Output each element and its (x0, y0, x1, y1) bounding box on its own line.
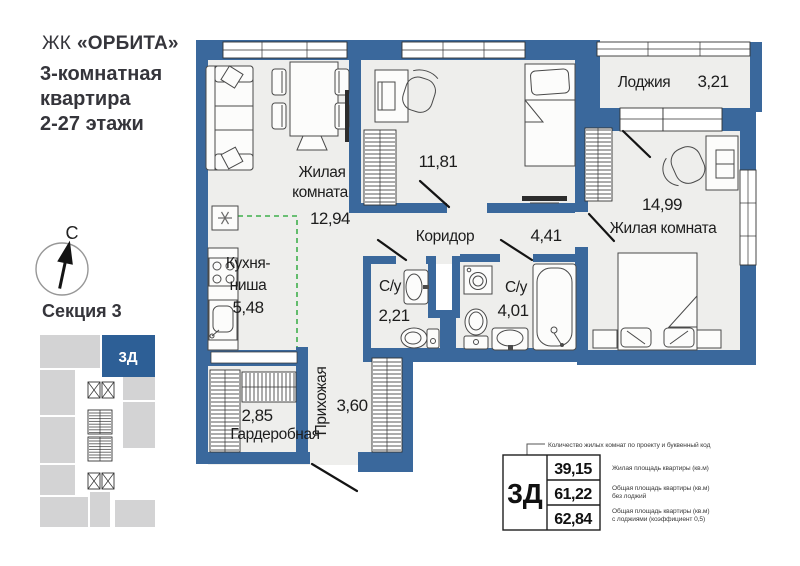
sofa-icon (206, 66, 253, 170)
legend-pointer-label: Количество жилых комнат по проекту и бук… (548, 441, 711, 449)
legend-label-total-area-2: без лоджий (612, 492, 647, 500)
room-area-kitchen: 5,48 (232, 298, 263, 317)
wardrobe-icon (242, 372, 296, 402)
legend-label-total-loggia-1: Общая площадь квартиры (кв.м) (612, 507, 709, 515)
desk-icon (706, 136, 738, 190)
room-label-living2: Жилая комната (610, 220, 718, 237)
wall-niche (211, 352, 297, 363)
room-label-living1-line1: Жилая (298, 164, 345, 181)
building-block (90, 492, 110, 527)
room-area-bath1: 2,21 (378, 306, 409, 325)
room-area-corridor: 4,41 (530, 226, 561, 245)
chair-icon (272, 69, 286, 95)
plumbing-shaft (436, 264, 452, 310)
elevator-icon (88, 382, 100, 398)
washing-machine-icon (464, 266, 492, 294)
nightstand-icon (697, 330, 721, 348)
tv-icon (345, 90, 349, 142)
bathroom-sink-icon (492, 328, 528, 350)
room-label-bath1: С/у (379, 278, 402, 295)
building-block (123, 402, 155, 448)
stairs-icon (88, 410, 112, 434)
building-block (115, 500, 155, 527)
legend-value-living-area: 39,15 (554, 461, 592, 478)
building-block (40, 497, 88, 527)
floor-plan-canvas: С 3Д (0, 0, 800, 566)
building-block (40, 465, 75, 495)
room-label-loggia: Лоджия (618, 74, 671, 91)
legend-unit-code: 3Д (507, 478, 543, 509)
balcony-door-unit (620, 108, 722, 131)
toilet-icon (464, 309, 488, 349)
chair-icon (272, 103, 286, 129)
legend-label-total-area-1: Общая площадь квартиры (кв.м) (612, 484, 709, 492)
window (740, 170, 756, 265)
vent-icon (212, 206, 238, 230)
legend-value-total-area-loggia: 62,84 (554, 511, 592, 528)
room-label-corridor: Коридор (416, 228, 474, 245)
room-area-wardrobe: 2,85 (241, 406, 272, 425)
room-area-bedroom2: 11,81 (419, 152, 458, 171)
elevator-icon (102, 382, 114, 398)
compass-north-label: С (66, 223, 79, 243)
room-area-loggia: 3,21 (697, 72, 728, 91)
floorplan-page: { "header": {"prefix": "ЖК", "name": "«О… (0, 0, 800, 566)
room-label-wardrobe: Гардеробная (230, 426, 319, 443)
room-label-bath2: С/у (505, 279, 528, 296)
toilet-icon (401, 328, 439, 348)
elevator-icon (102, 473, 114, 489)
room-area-hallway: 3,60 (336, 396, 367, 415)
wardrobe-icon (364, 130, 396, 205)
room-area-bath2: 4,01 (497, 301, 528, 320)
stairs-icon (88, 437, 112, 461)
window (223, 42, 347, 58)
room-area-living2: 14,99 (642, 195, 682, 214)
legend-pointer-line (527, 444, 545, 455)
compass-icon: С (36, 223, 88, 295)
legend-row-labels: Жилая площадь квартиры (кв.м) Общая площ… (612, 465, 709, 523)
legend-table: 3Д 39,15 61,22 62,84 (503, 455, 600, 530)
bathtub-icon (533, 264, 576, 350)
window (402, 42, 525, 58)
bathroom-sink-icon (404, 270, 429, 304)
single-bed-icon (525, 64, 575, 166)
legend-label-living-area: Жилая площадь квартиры (кв.м) (612, 465, 709, 472)
wardrobe-icon (372, 358, 402, 452)
room-label-kitchen-line1: Кухня- (226, 255, 270, 272)
building-block (40, 335, 100, 368)
floor-plan: Жилая комната 12,94 Кухня- ниша 5,48 11,… (196, 40, 762, 491)
legend-label-total-loggia-2: с лоджиями (коэффициент 0,5) (612, 516, 705, 523)
building-block (40, 370, 75, 415)
room-area-living1: 12,94 (310, 209, 350, 228)
legend-value-total-area: 61,22 (554, 486, 592, 503)
legend: Количество жилых комнат по проекту и бук… (503, 441, 711, 530)
entrance-door-swing (312, 464, 357, 491)
building-block (40, 417, 75, 463)
double-bed-icon (618, 253, 697, 350)
loggia-glazing (597, 42, 750, 56)
section-plan: 3Д (40, 335, 155, 527)
elevator-icon (88, 473, 100, 489)
room-label-kitchen-line2: ниша (230, 277, 267, 294)
room-label-living1-line2: комната (292, 184, 349, 201)
nightstand-icon (593, 330, 617, 348)
unit-3d-label: 3Д (118, 349, 137, 366)
wardrobe-icon (585, 128, 612, 201)
